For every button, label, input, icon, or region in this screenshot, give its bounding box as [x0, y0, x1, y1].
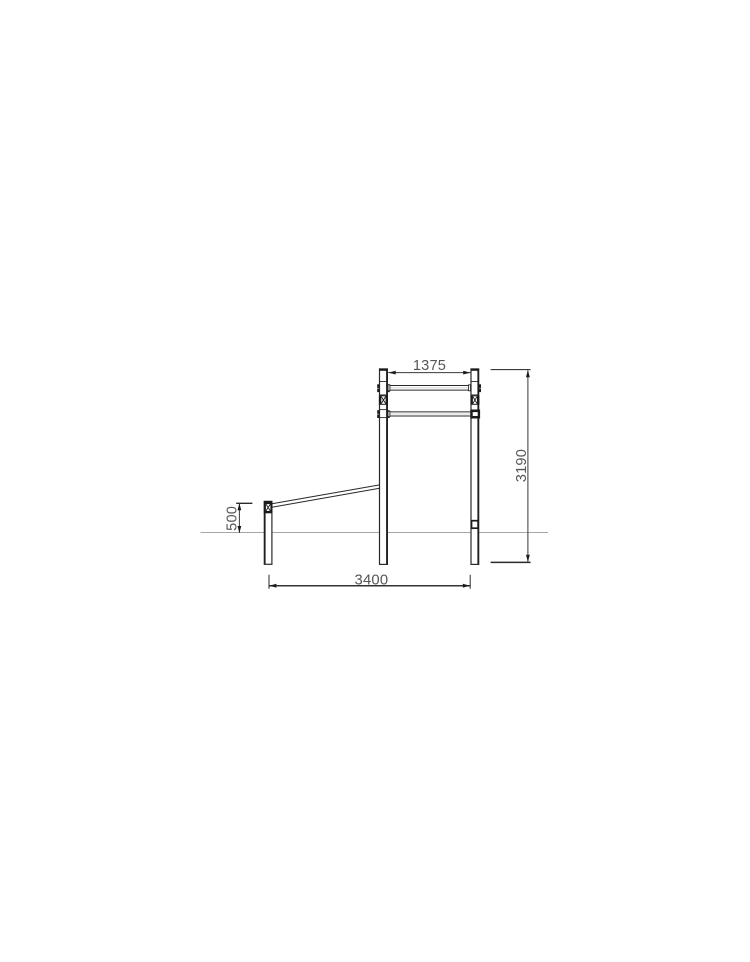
svg-text:3190: 3190: [514, 449, 530, 482]
svg-text:1375: 1375: [413, 358, 446, 374]
svg-text:3400: 3400: [355, 572, 389, 588]
svg-text:500: 500: [224, 506, 240, 531]
